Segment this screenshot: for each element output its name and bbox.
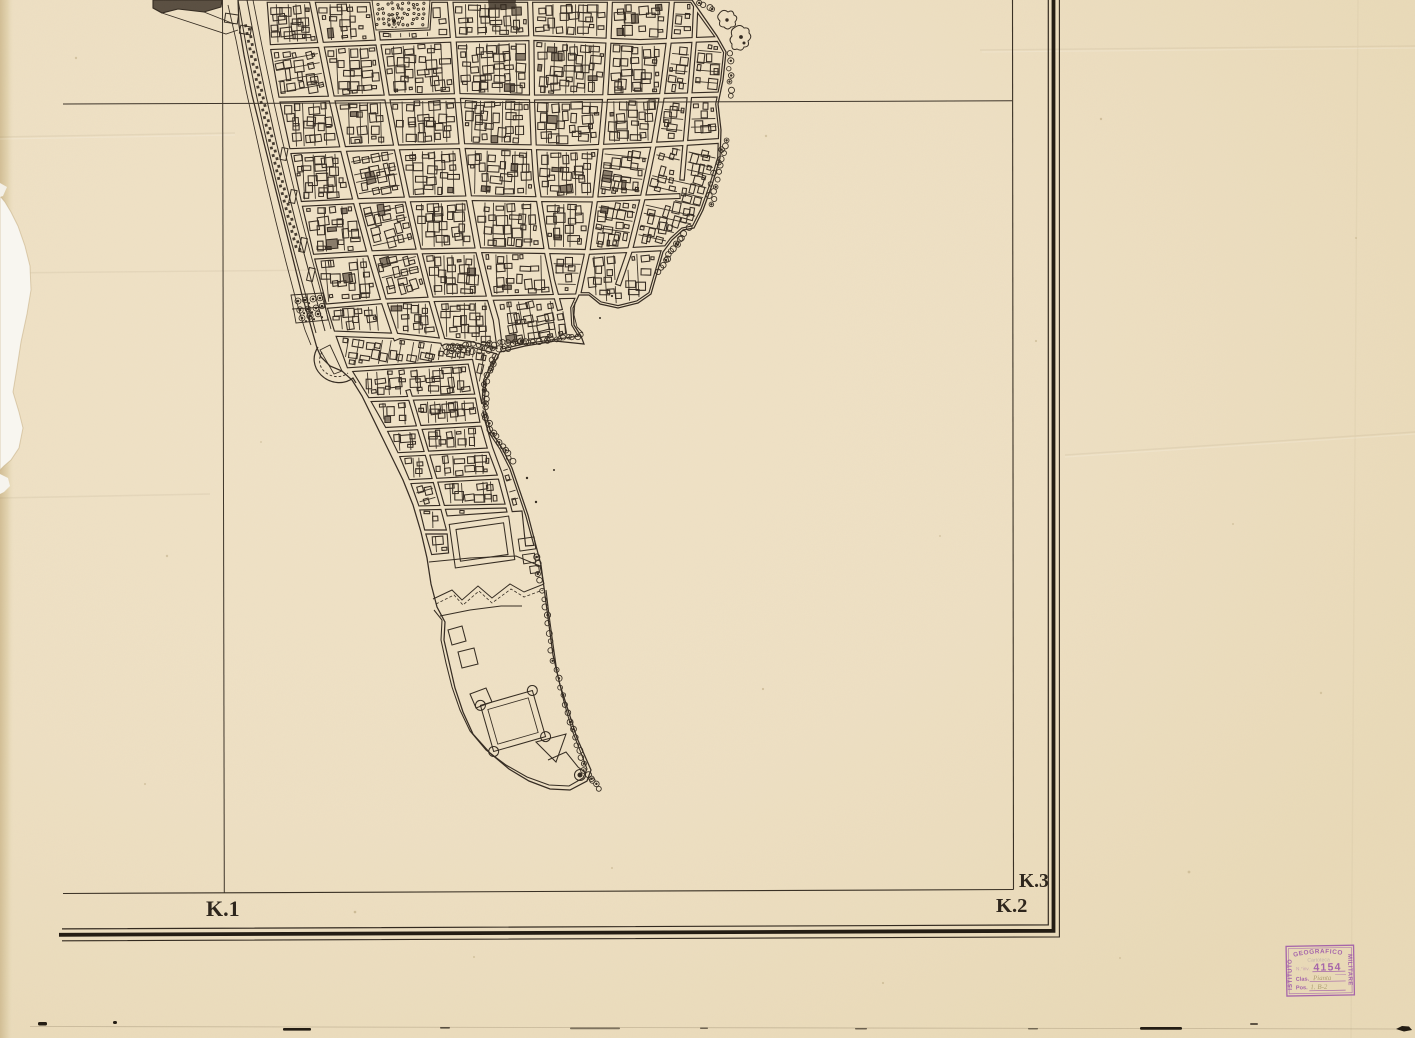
svg-text:K.1: K.1 (206, 896, 240, 921)
svg-text:ISTITUTO: ISTITUTO (1287, 959, 1294, 990)
svg-text:MILITARE: MILITARE (1346, 954, 1353, 986)
svg-text:1. B-2: 1. B-2 (1310, 983, 1328, 991)
svg-text:K.2: K.2 (996, 895, 1027, 917)
svg-text:K.3: K.3 (1019, 871, 1049, 892)
svg-text:Clas.: Clas. (1296, 977, 1310, 983)
svg-text:N.°inv.: N.°inv. (1296, 966, 1310, 972)
svg-text:Pos.: Pos. (1296, 985, 1308, 991)
